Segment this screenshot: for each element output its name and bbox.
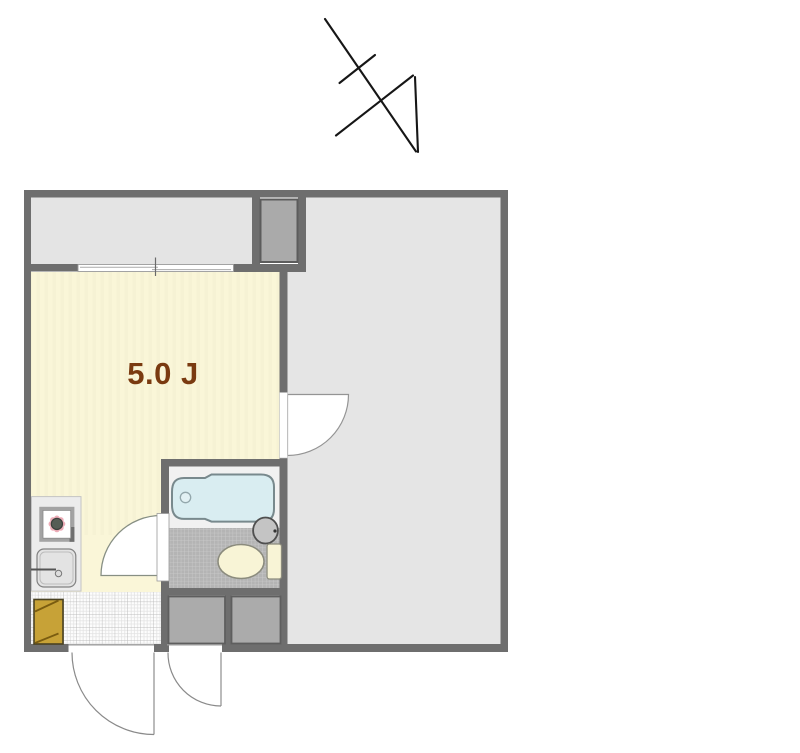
svg-text:5.0 J: 5.0 J	[127, 356, 198, 391]
